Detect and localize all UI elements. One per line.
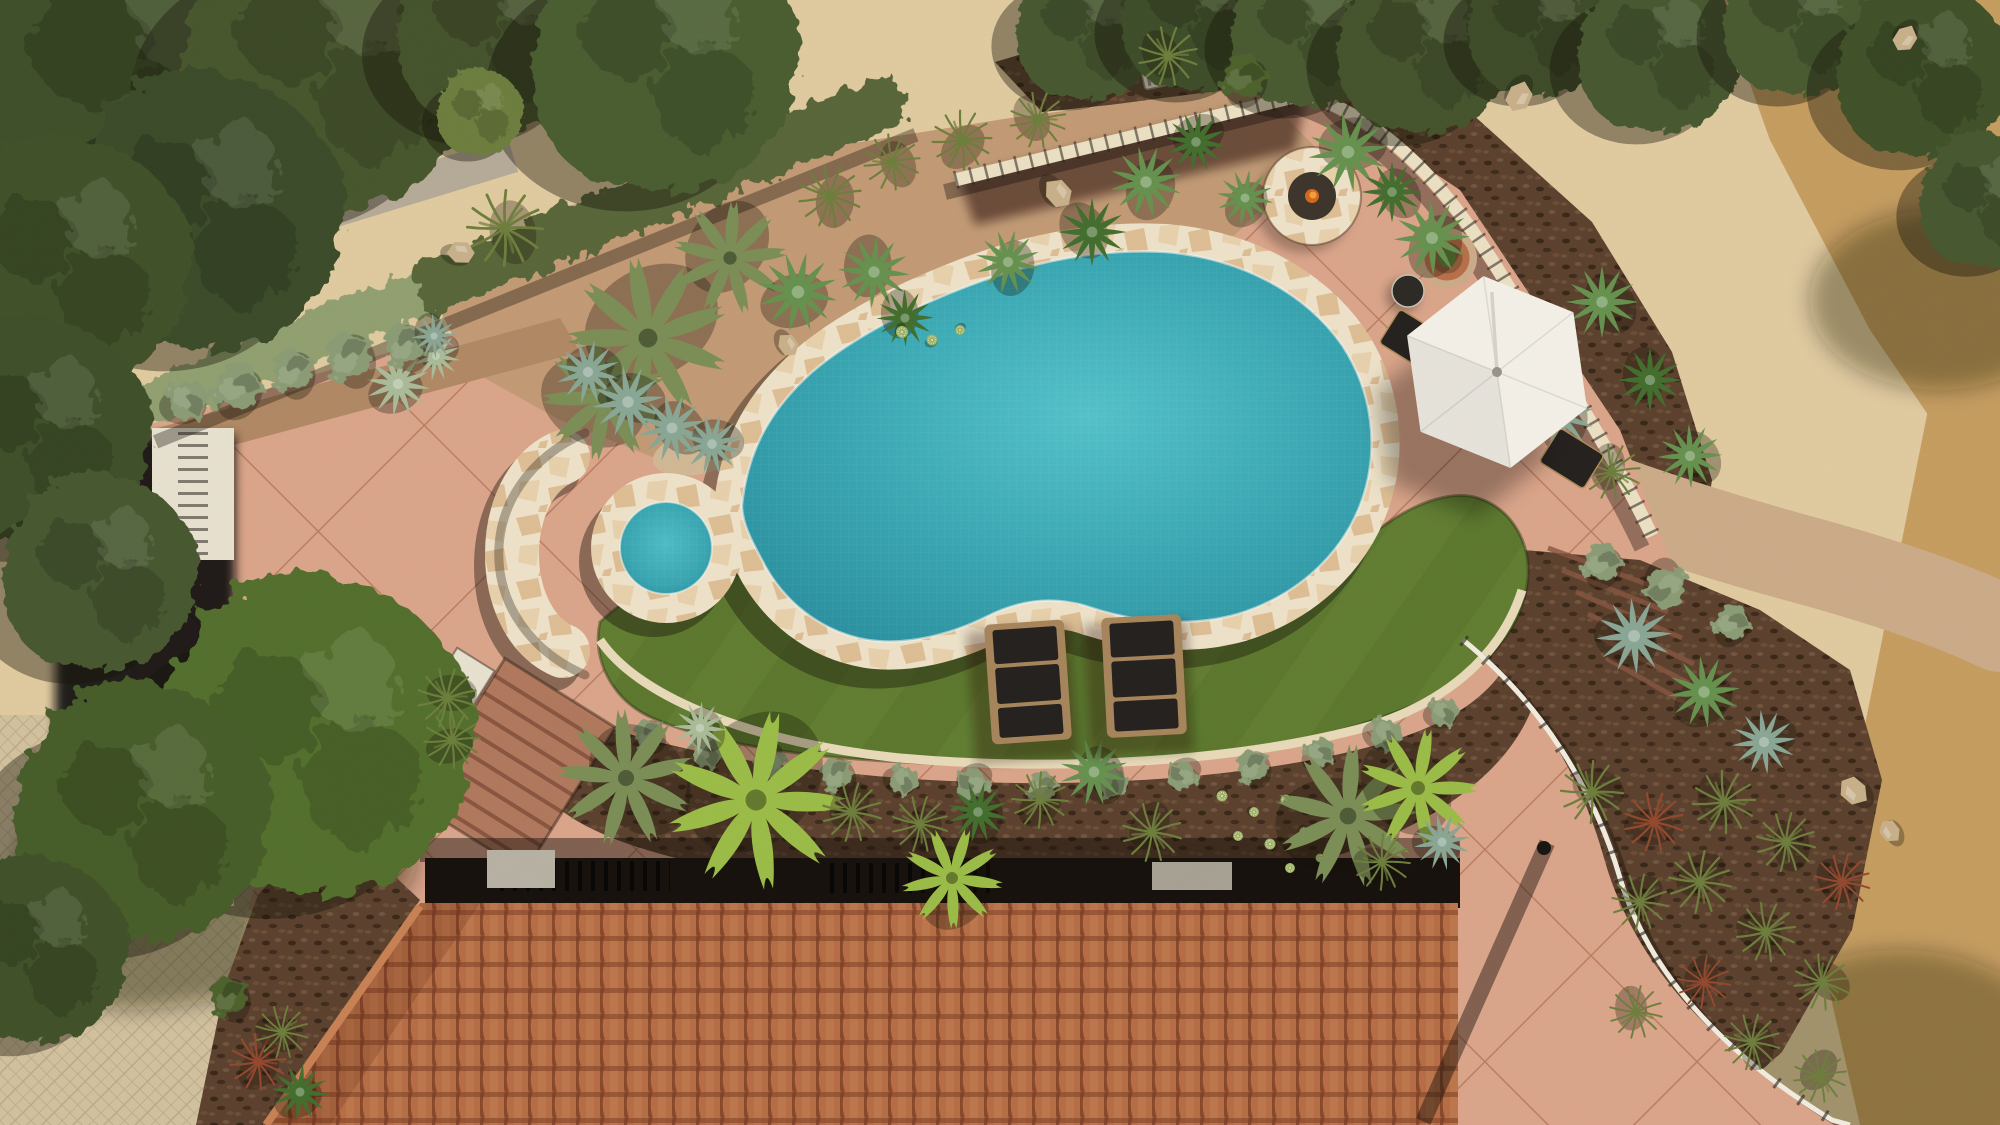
flame-icon-core [1310, 192, 1317, 199]
aerial-backyard-render [0, 0, 2000, 1125]
house-roof-group [263, 838, 1460, 1125]
aerial-render-stage [0, 0, 2000, 1125]
patio-storage-box [1152, 862, 1232, 890]
patio-storage-box [487, 850, 555, 888]
spa-water-texture [620, 502, 712, 594]
lounge-chair [966, 619, 1079, 764]
lounge-chair [1083, 614, 1194, 757]
shade-post [1537, 841, 1551, 855]
